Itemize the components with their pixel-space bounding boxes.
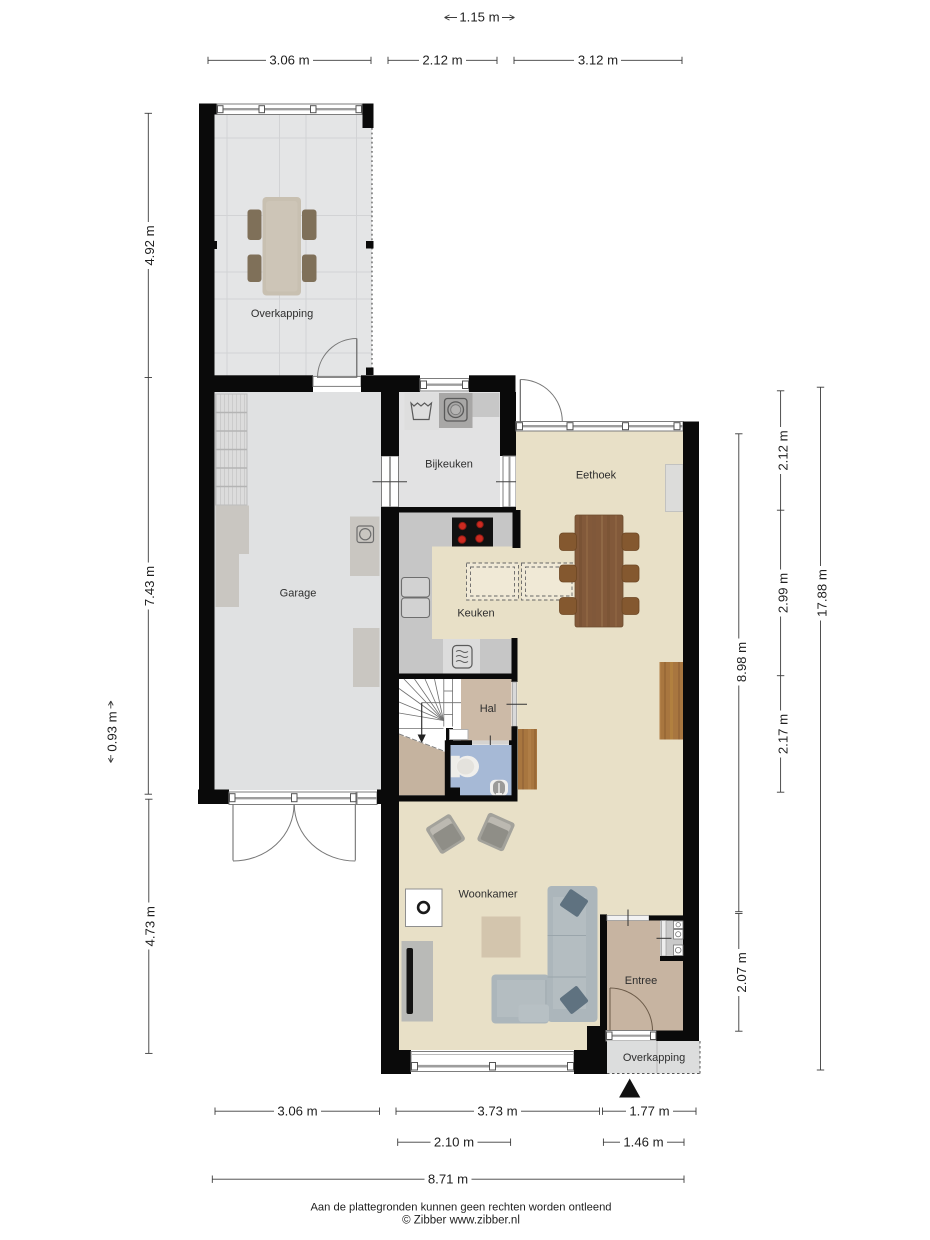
svg-text:8.98 m: 8.98 m [734,642,749,682]
svg-text:© Zibber www.zibber.nl: © Zibber www.zibber.nl [402,1215,520,1227]
svg-text:1.15 m: 1.15 m [459,10,499,25]
svg-text:7.43 m: 7.43 m [142,566,157,606]
svg-text:2.12 m: 2.12 m [422,53,462,68]
svg-text:3.73 m: 3.73 m [477,1103,517,1118]
svg-text:Keuken: Keuken [457,608,494,620]
svg-text:Entree: Entree [625,975,657,987]
svg-text:Garage: Garage [280,588,317,600]
svg-text:8.71 m: 8.71 m [428,1171,468,1186]
svg-text:Hal: Hal [480,703,497,715]
svg-text:4.73 m: 4.73 m [143,906,158,946]
svg-text:3.12 m: 3.12 m [578,53,618,68]
svg-text:2.10 m: 2.10 m [434,1134,474,1149]
svg-text:2.17 m: 2.17 m [776,714,791,754]
svg-text:Eethoek: Eethoek [576,470,617,482]
svg-text:2.99 m: 2.99 m [776,573,791,613]
svg-text:Overkapping: Overkapping [251,308,313,320]
svg-text:2.12 m: 2.12 m [776,430,791,470]
svg-text:3.06 m: 3.06 m [277,1103,317,1118]
svg-text:4.92 m: 4.92 m [142,225,157,265]
svg-text:Bijkeuken: Bijkeuken [425,459,473,471]
svg-text:1.77 m: 1.77 m [629,1103,669,1118]
svg-text:Overkapping: Overkapping [623,1052,685,1064]
svg-text:Woonkamer: Woonkamer [458,889,517,901]
svg-text:2.07 m: 2.07 m [734,952,749,992]
svg-text:17.88 m: 17.88 m [815,569,830,617]
svg-text:Aan de plattegronden kunnen ge: Aan de plattegronden kunnen geen rechten… [310,1202,611,1214]
svg-text:3.06 m: 3.06 m [269,53,309,68]
svg-text:0.93 m: 0.93 m [105,711,120,751]
svg-text:1.46 m: 1.46 m [623,1134,663,1149]
